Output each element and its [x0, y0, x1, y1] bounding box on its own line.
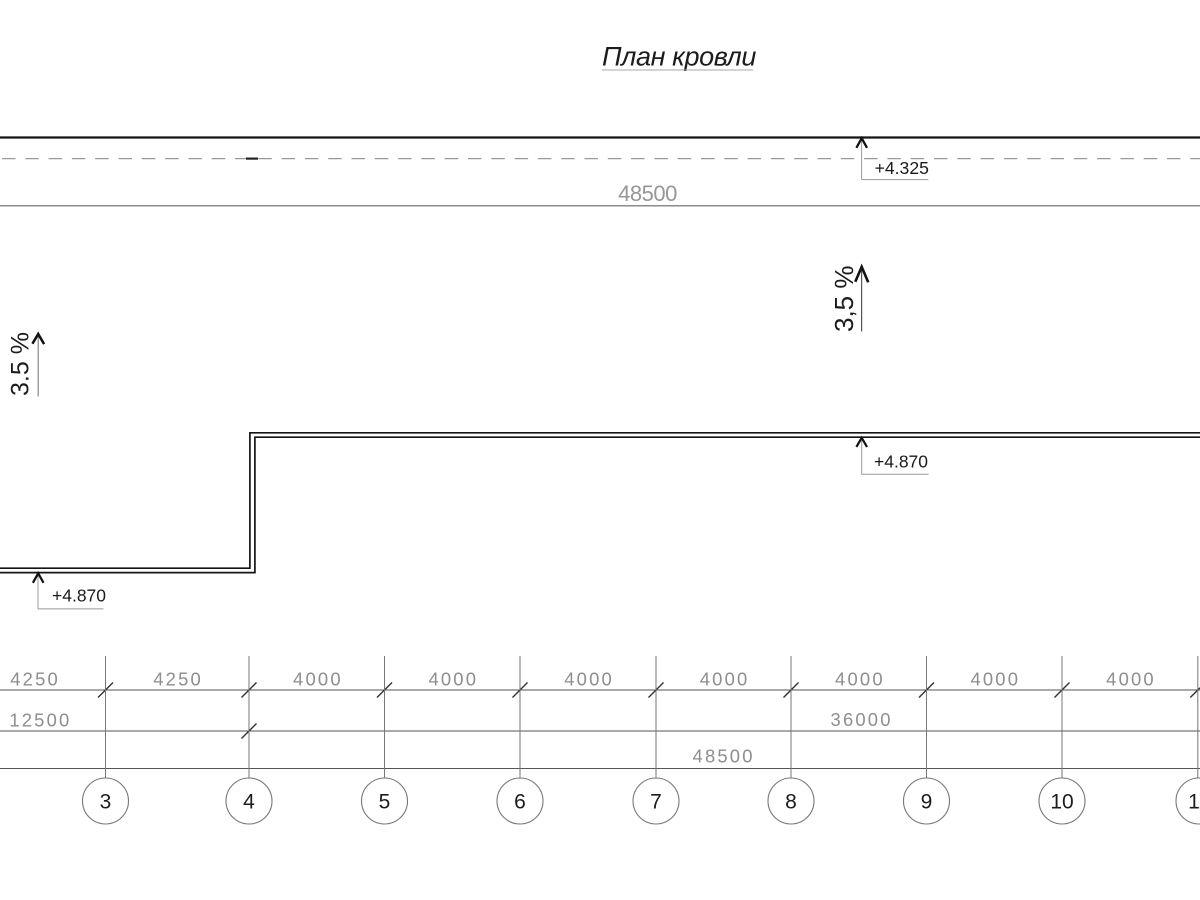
- svg-text:36000: 36000: [831, 709, 893, 730]
- svg-text:4: 4: [243, 791, 255, 814]
- svg-text:11: 11: [1188, 791, 1200, 814]
- svg-text:4000: 4000: [428, 669, 478, 690]
- svg-text:3: 3: [100, 791, 112, 814]
- svg-text:4000: 4000: [1106, 669, 1156, 690]
- svg-text:4000: 4000: [700, 669, 750, 690]
- svg-text:4000: 4000: [970, 669, 1020, 690]
- svg-text:48500: 48500: [693, 746, 755, 767]
- svg-text:4000: 4000: [293, 669, 343, 690]
- svg-text:+4.870: +4.870: [874, 452, 928, 472]
- svg-text:План кровли: План кровли: [602, 42, 756, 72]
- svg-text:9: 9: [921, 791, 933, 814]
- svg-text:7: 7: [650, 791, 662, 814]
- svg-text:4250: 4250: [153, 669, 203, 690]
- svg-text:3.5 %: 3.5 %: [7, 332, 35, 396]
- svg-text:8: 8: [785, 791, 797, 814]
- svg-text:12500: 12500: [9, 709, 71, 730]
- svg-text:6: 6: [514, 791, 526, 814]
- svg-text:48500: 48500: [618, 181, 677, 206]
- svg-text:10: 10: [1050, 791, 1073, 814]
- svg-text:4000: 4000: [835, 669, 885, 690]
- svg-text:5: 5: [379, 791, 391, 814]
- svg-text:+4.325: +4.325: [875, 158, 930, 178]
- svg-text:4000: 4000: [564, 669, 614, 690]
- svg-text:+4.870: +4.870: [52, 586, 106, 606]
- svg-text:3,5 %: 3,5 %: [829, 266, 859, 333]
- svg-text:4250: 4250: [10, 669, 60, 690]
